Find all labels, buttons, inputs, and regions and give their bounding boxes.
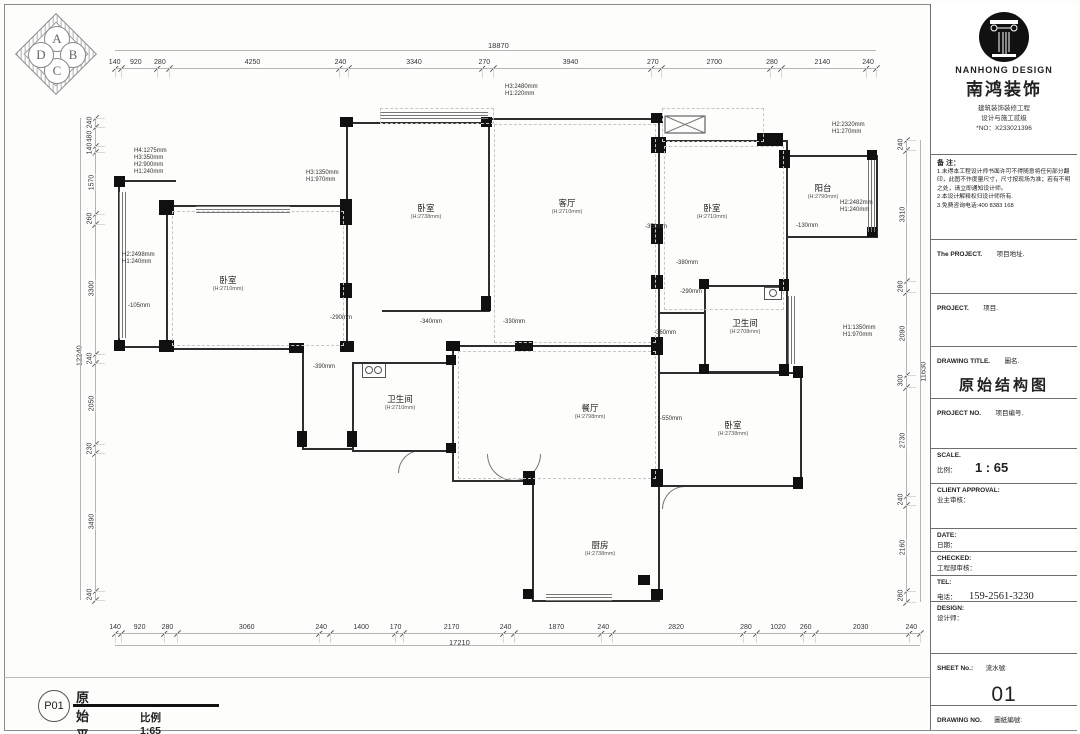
dim-guide — [906, 387, 916, 388]
wall — [800, 372, 802, 487]
dim-guide — [906, 150, 916, 151]
height-annotation: H1:1350mm H1:970mm — [843, 325, 876, 339]
notes-box: 备 注： 1.未得本工程设计师书面许可不得随意将任何部分翻印，此图不作度量尺寸，… — [931, 155, 1077, 240]
client-approval-box: CLIENT APPROVAL: 业主审核： — [931, 484, 1077, 529]
dim-label: 300 — [897, 374, 904, 388]
column-pier — [793, 477, 803, 489]
brand-name-cn: 南鸿装饰 — [937, 75, 1071, 100]
dim-label: 2050 — [88, 394, 95, 412]
dim-guide — [743, 633, 744, 643]
brand-name-en: NANHONG DESIGN — [937, 65, 1071, 75]
dim-guide — [115, 633, 116, 643]
dim-label: 240 — [86, 351, 93, 365]
window-icon — [546, 597, 612, 598]
dim-total-line — [115, 645, 920, 646]
dim-guide — [95, 118, 105, 119]
drawing-title-label-cn: 圖名. — [1005, 358, 1020, 365]
window-icon — [196, 206, 290, 207]
dim-guide — [95, 591, 105, 592]
dashed-outline — [172, 211, 344, 346]
wall — [488, 122, 490, 312]
dim-label: 240 — [86, 588, 93, 602]
dim-guide — [95, 363, 105, 364]
window-icon — [196, 209, 290, 210]
dim-label: 240 — [314, 624, 328, 631]
dim-guide — [395, 633, 396, 643]
dim-guide — [339, 68, 340, 78]
dashed-outline — [380, 108, 494, 124]
checked-box: CHECKED: 工程部审核： — [931, 552, 1077, 576]
dashed-outline — [662, 108, 764, 142]
dim-guide — [177, 633, 178, 643]
tel-label-cn: 电话： — [937, 594, 957, 601]
dim-guide — [815, 633, 816, 643]
height-annotation: -550mm — [660, 416, 682, 423]
note-item: 2.本设计解释权归设计师所有. — [937, 193, 1071, 201]
basin-bowl-icon — [374, 366, 382, 374]
wall — [118, 180, 176, 182]
plan-title: 原始平面圖 — [76, 687, 91, 734]
dim-label: 2730 — [899, 432, 906, 450]
dim-label: 240 — [596, 624, 610, 631]
window-icon — [546, 600, 612, 601]
room-label: 卧室(H:2710mm) — [213, 275, 244, 293]
dim-label: 2140 — [814, 59, 832, 66]
drawing-sheet: A B C D 18870 17210 12240 11630 14092028… — [0, 0, 1080, 734]
dim-label: 260 — [86, 211, 93, 225]
wall — [352, 450, 454, 452]
column-pier — [297, 431, 307, 447]
dim-label: 2090 — [899, 324, 906, 342]
dim-guide — [920, 633, 921, 643]
dim-label: 920 — [129, 59, 143, 66]
dim-label: 3940 — [562, 59, 580, 66]
dim-guide — [121, 68, 122, 78]
project-label-cn: 项目. — [983, 305, 998, 312]
dim-guide — [906, 281, 916, 282]
window-icon — [874, 160, 875, 232]
column-logo-icon — [978, 11, 1030, 63]
room-label: 客厅(H:2710mm) — [552, 198, 583, 216]
dim-label: 240 — [897, 493, 904, 507]
date-label-cn: 日期： — [937, 539, 1071, 549]
dim-label: 920 — [133, 624, 147, 631]
dim-label: 1400 — [352, 624, 370, 631]
dim-guide — [157, 68, 158, 78]
dim-label: 1020 — [769, 624, 787, 631]
project-address-box: The PROJECT. 项目地址. — [931, 240, 1077, 294]
dim-guide — [866, 68, 867, 78]
height-annotation: -390mm — [313, 364, 335, 371]
column-pier — [793, 366, 803, 378]
wall — [658, 485, 802, 487]
dim-guide — [906, 591, 916, 592]
dim-guide — [95, 600, 105, 601]
brand-line1: 建筑装饰装修工程 — [937, 104, 1071, 114]
door-arc-icon — [398, 450, 421, 473]
height-annotation: -290mm — [680, 289, 702, 296]
window-icon — [119, 192, 120, 338]
project-address-label-cn: 项目地址. — [997, 251, 1025, 258]
dim-guide — [493, 68, 494, 78]
dim-label: 240 — [861, 59, 875, 66]
column-pier — [481, 296, 491, 311]
dim-total-line — [80, 118, 81, 600]
project-no-box: PROJECT NO. 项目编号. — [931, 399, 1077, 449]
dim-guide — [906, 602, 916, 603]
dim-guide — [781, 68, 782, 78]
brand-no: *NO：X233021396 — [937, 124, 1071, 134]
dim-label: 170 — [389, 624, 403, 631]
column-pier — [699, 364, 709, 374]
height-annotation: H4:1275mm H3:350mm H2:900mm H1:240mm — [134, 148, 167, 176]
dim-label: 260 — [799, 624, 813, 631]
height-annotation: H3:1350mm H1:970mm — [306, 170, 339, 184]
height-annotation: -290mm — [330, 315, 352, 322]
client-approval-label-cn: 业主审核： — [937, 494, 1071, 504]
sheet-no-box: SHEET No.: 流水號: 01 — [931, 654, 1077, 706]
dim-total-line — [920, 140, 921, 602]
wall — [788, 236, 876, 238]
dim-guide — [770, 68, 771, 78]
floor-plan: 18870 17210 12240 11630 1409202804250240… — [0, 0, 930, 734]
drawing-title-value: 原始结构图 — [937, 374, 1071, 395]
dim-label: 240 — [904, 624, 918, 631]
dim-line — [115, 633, 920, 634]
title-underline — [73, 704, 219, 707]
room-label: 卫生间(H:2708mm) — [730, 318, 761, 336]
dim-guide — [803, 633, 804, 643]
brand-line2: 设计与施工贰级 — [937, 114, 1071, 124]
wall — [788, 155, 878, 157]
dim-guide — [514, 633, 515, 643]
wall — [352, 362, 454, 364]
dim-guide — [95, 444, 105, 445]
brand-box: NANHONG DESIGN 南鸿装饰 建筑装饰装修工程 设计与施工贰级 *NO… — [931, 4, 1077, 155]
note-item: 1.未得本工程设计师书面许可不得随意将任何部分翻印，此图不作度量尺寸，尺寸按现场… — [937, 168, 1071, 193]
dim-label: 2700 — [705, 59, 723, 66]
dim-label: 230 — [86, 441, 93, 455]
project-label-en: PROJECT. — [937, 305, 969, 312]
dim-label: 3060 — [238, 624, 256, 631]
room-label: 卧室(H:2738mm) — [411, 203, 442, 221]
dim-label: 240 — [86, 115, 93, 129]
dim-guide — [95, 127, 105, 128]
window-icon — [868, 160, 869, 232]
column-pier — [340, 117, 353, 127]
dim-guide — [906, 140, 916, 141]
dim-label: 280 — [897, 279, 904, 293]
height-annotation: -360mm — [654, 330, 676, 337]
checked-label-cn: 工程部审核： — [937, 562, 1071, 572]
dim-label: 140 — [108, 59, 122, 66]
column-pier — [114, 176, 125, 187]
sheet-no-label-cn: 流水號: — [986, 665, 1007, 672]
column-pier — [779, 364, 789, 376]
tel-value: 159-2561-3230 — [969, 591, 1034, 602]
dim-label: 2030 — [852, 624, 870, 631]
footer-divider — [4, 677, 930, 678]
dim-label: 240 — [334, 59, 348, 66]
window-icon — [788, 296, 789, 364]
plan-scale: 比例1:65 — [140, 710, 161, 734]
door-arc-icon — [662, 486, 685, 509]
title-block: NANHONG DESIGN 南鸿装饰 建筑装饰装修工程 设计与施工贰级 *NO… — [930, 4, 1077, 730]
dim-guide — [115, 68, 116, 78]
column-pier — [523, 589, 533, 599]
dim-label: 280 — [739, 624, 753, 631]
tel-box: TEL: 电话： 159-2561-3230 — [931, 576, 1077, 602]
dim-label: 3340 — [405, 59, 423, 66]
dim-guide — [756, 633, 757, 643]
column-pier — [867, 150, 877, 160]
dim-guide — [95, 146, 105, 147]
wall — [452, 480, 534, 482]
window-icon — [791, 296, 792, 364]
dim-label: 240 — [499, 624, 513, 631]
window-icon — [871, 160, 872, 232]
column-pier — [446, 443, 456, 453]
height-annotation: -130mm — [796, 223, 818, 230]
height-annotation: -340mm — [420, 319, 442, 326]
wall — [876, 155, 878, 238]
date-label-en: DATE: — [937, 532, 1071, 539]
dim-line — [115, 68, 876, 69]
dim-total-top: 18870 — [487, 42, 510, 50]
dim-label: 3490 — [88, 513, 95, 531]
scale-box: SCALE. 比例： 1 : 65 — [931, 449, 1077, 484]
dim-guide — [906, 505, 916, 506]
column-pier — [114, 340, 125, 351]
drawing-no-box: DRAWING NO. 圖紙編號: — [931, 706, 1077, 730]
drawing-title-label-en: DRAWING TITLE. — [937, 358, 990, 365]
checked-label-en: CHECKED: — [937, 555, 1071, 562]
dim-guide — [612, 633, 613, 643]
dashed-outline — [458, 351, 656, 479]
sheet-no-value: 01 — [937, 683, 1071, 707]
room-label: 卫生间(H:2710mm) — [385, 394, 416, 412]
dim-label: 140 — [108, 624, 122, 631]
column-pier — [347, 431, 357, 447]
dim-guide — [164, 633, 165, 643]
dim-label: 4250 — [244, 59, 262, 66]
design-label-en: DESIGN: — [937, 605, 1071, 612]
dim-guide — [95, 453, 105, 454]
column-pier — [446, 341, 460, 351]
sheet-no-label-en: SHEET No.: — [937, 665, 973, 672]
height-annotation: H2:2320mm H1:270mm — [832, 122, 865, 136]
basin-bowl-icon — [365, 366, 373, 374]
height-annotation: -380mm — [676, 260, 698, 267]
dim-label: 1570 — [88, 173, 95, 191]
height-annotation: -330mm — [503, 319, 525, 326]
wall — [488, 118, 660, 120]
wall — [450, 345, 660, 347]
wall — [532, 480, 534, 602]
dim-guide — [906, 496, 916, 497]
dim-guide — [651, 68, 652, 78]
dim-label: 1870 — [548, 624, 566, 631]
drawing-title-box: DRAWING TITLE. 圖名. 原始结构图 — [931, 347, 1077, 399]
drawing-no-label-cn: 圖紙編號: — [994, 717, 1022, 724]
dim-guide — [906, 292, 916, 293]
room-label: 厨房(H:2738mm) — [585, 540, 616, 558]
project-no-label-cn: 项目编号. — [996, 410, 1024, 417]
dim-label: 2170 — [443, 624, 461, 631]
dim-label: 2820 — [667, 624, 685, 631]
room-label: 阳台(H:2790mm) — [808, 183, 839, 201]
wall — [166, 205, 168, 350]
wall — [658, 312, 706, 314]
dim-guide — [403, 633, 404, 643]
dim-label: 280 — [765, 59, 779, 66]
room-label: 餐厅(H:2798mm) — [575, 403, 606, 421]
dim-label: 240 — [897, 137, 904, 151]
dim-label: 3310 — [899, 206, 906, 224]
wall — [452, 345, 454, 482]
dim-guide — [319, 633, 320, 643]
dim-label: 280 — [153, 59, 167, 66]
project-box: PROJECT. 项目. — [931, 294, 1077, 347]
column-pier — [446, 355, 456, 365]
dashed-outline — [664, 146, 784, 310]
scale-label-en: SCALE. — [937, 452, 1071, 459]
height-annotation: H2:2482mm H1:240mm — [840, 200, 873, 214]
wall — [302, 448, 354, 450]
dim-guide — [95, 152, 105, 153]
column-pier — [651, 589, 663, 600]
height-annotation: -105mm — [128, 303, 150, 310]
wall — [166, 348, 304, 350]
dim-guide — [909, 633, 910, 643]
dim-guide — [503, 633, 504, 643]
dim-guide — [95, 224, 105, 225]
dim-guide — [95, 354, 105, 355]
dim-label: 280 — [897, 589, 904, 603]
window-icon — [546, 594, 612, 595]
wall — [382, 310, 490, 312]
height-annotation: H3:2480mm H1:220mm — [505, 84, 538, 98]
note-item: 3.免费咨询电话:400 8383 168 — [937, 202, 1071, 210]
dim-guide — [906, 375, 916, 376]
window-icon — [794, 296, 795, 364]
dim-guide — [348, 68, 349, 78]
height-annotation: H2:2498mm H1:240mm — [122, 252, 155, 266]
scale-label-cn: 比例： — [937, 467, 957, 474]
scale-value: 1 : 65 — [975, 460, 1008, 475]
design-box: DESIGN: 设计师： — [931, 602, 1077, 654]
room-label: 卧室(H:2738mm) — [718, 420, 749, 438]
plan-number-badge: P01 — [38, 690, 70, 722]
dim-label: 280 — [161, 624, 175, 631]
project-no-label-en: PROJECT NO. — [937, 410, 981, 417]
height-annotation: -350mm — [645, 224, 667, 231]
dim-guide — [121, 633, 122, 643]
date-box: DATE: 日期： — [931, 529, 1077, 552]
dim-guide — [661, 68, 662, 78]
design-label-cn: 设计师： — [937, 612, 1071, 622]
dim-total-line — [115, 50, 876, 51]
project-address-label-en: The PROJECT. — [937, 251, 982, 258]
dim-label: 3300 — [88, 280, 95, 298]
notes-heading: 备 注： — [937, 158, 1071, 168]
dim-guide — [482, 68, 483, 78]
room-label: 卧室(H:2710mm) — [697, 203, 728, 221]
dim-guide — [601, 633, 602, 643]
dim-guide — [169, 68, 170, 78]
tel-label-en: TEL: — [937, 579, 1071, 586]
dim-label: 270 — [646, 59, 660, 66]
dashed-outline — [494, 124, 656, 343]
dim-guide — [95, 214, 105, 215]
dim-guide — [876, 68, 877, 78]
drawing-no-label-en: DRAWING NO. — [937, 717, 982, 724]
client-approval-label-en: CLIENT APPROVAL: — [937, 487, 1071, 494]
column-pier — [638, 575, 650, 585]
dim-label: 2160 — [899, 539, 906, 557]
dim-guide — [330, 633, 331, 643]
dim-label: 270 — [477, 59, 491, 66]
dim-label: 140 — [86, 142, 93, 156]
